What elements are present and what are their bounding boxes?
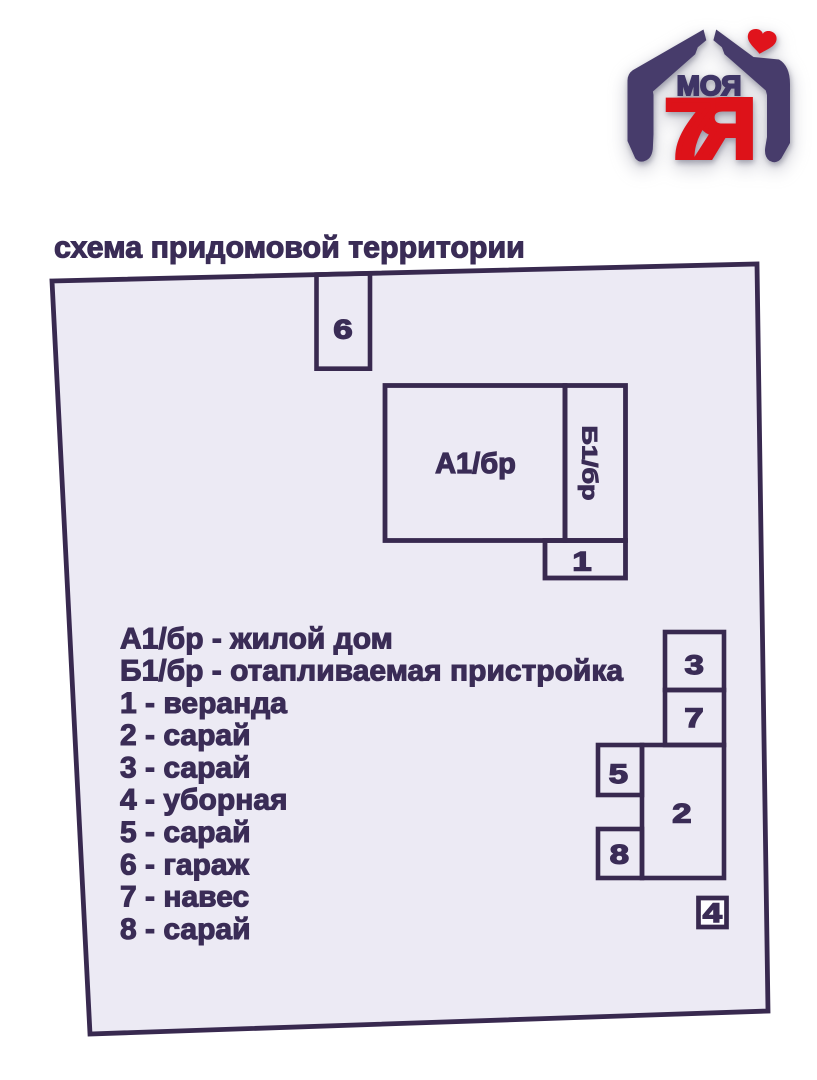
svg-text:Б1/бр - отапливаемая пристройк: Б1/бр - отапливаемая пристройка: [120, 655, 623, 688]
svg-text:схема придомовой территории: схема придомовой территории: [54, 231, 525, 265]
svg-text:3: 3: [685, 650, 704, 680]
svg-text:5 - сарай: 5 - сарай: [120, 816, 251, 849]
svg-text:А1/бр - жилой дом: А1/бр - жилой дом: [120, 622, 393, 655]
svg-text:4 - уборная: 4 - уборная: [120, 784, 288, 817]
svg-text:5: 5: [609, 759, 628, 789]
svg-text:6 - гараж: 6 - гараж: [120, 848, 250, 881]
svg-text:6: 6: [333, 314, 352, 344]
svg-text:8: 8: [610, 839, 629, 869]
svg-text:А1/бр: А1/бр: [435, 448, 516, 480]
svg-text:Б1/бр: Б1/бр: [577, 425, 601, 500]
svg-text:8 - сарай: 8 - сарай: [120, 913, 251, 946]
svg-text:3 - сарай: 3 - сарай: [120, 752, 251, 785]
svg-text:7: 7: [665, 82, 718, 176]
svg-text:7: 7: [684, 703, 703, 733]
svg-text:4: 4: [703, 898, 723, 928]
svg-text:2: 2: [672, 798, 691, 828]
svg-text:1: 1: [572, 546, 591, 576]
svg-text:2 - сарай: 2 - сарай: [120, 719, 251, 752]
svg-text:1 - веранда: 1 - веранда: [120, 687, 287, 720]
svg-text:7 - навес: 7 - навес: [120, 881, 249, 914]
